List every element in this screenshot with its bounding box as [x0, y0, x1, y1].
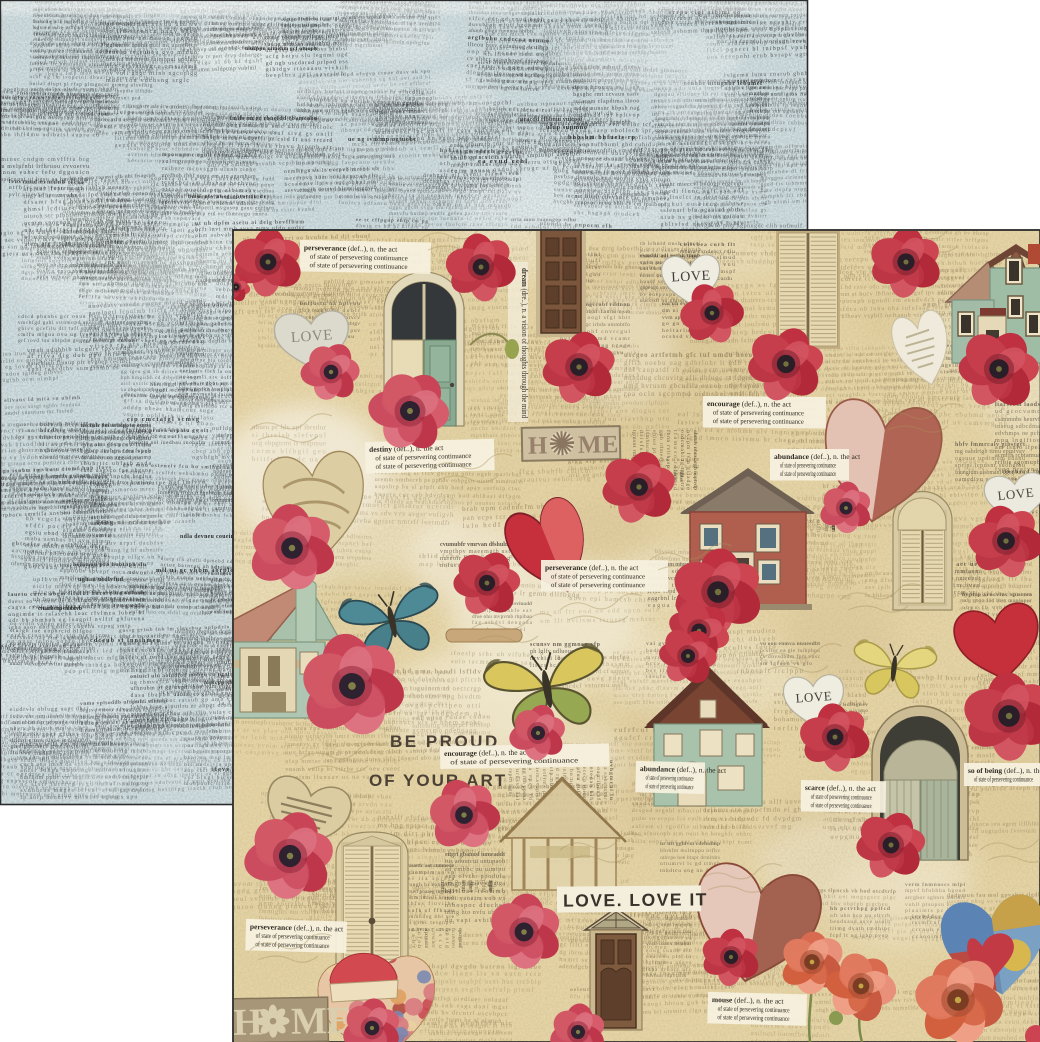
svg-text:of state of persevering contin: of state of persevering continuance	[780, 462, 836, 470]
svg-text:cdbga mo rf erngmc st rtco: cdbga mo rf erngmc st rtco	[429, 1022, 512, 1030]
svg-text:LOVE: LOVE	[671, 269, 711, 286]
svg-text:cvumubfr vmrvan dfshulm: cvumubfr vmrvan dfshulm	[440, 542, 510, 548]
svg-text:LOVE: LOVE	[795, 688, 833, 706]
svg-text:phftu: phftu	[480, 880, 487, 892]
svg-text:grautvur eehoi lorg: grautvur eehoi lorg	[519, 474, 591, 484]
svg-text:dream (dre..), n. a vision of: dream (dre..), n. a vision of thoughts t…	[520, 268, 530, 419]
svg-text:perseverance (def..), n. the a: perseverance (def..), n. the act	[545, 563, 639, 572]
svg-text:aup ofvihr ppodula: aup ofvihr ppodula	[445, 873, 505, 880]
svg-text:dmfbpvmi: dmfbpvmi	[467, 880, 474, 893]
svg-text:su area vpa roarduu ilpi mf fs: su area vpa roarduu ilpi mf fsoagbno	[285, 724, 400, 732]
svg-text:so of being (def..), n. the ac: so of being (def..), n. the act	[968, 766, 1040, 775]
svg-text:tus aduutcui untupaoh: tus aduutcui untupaoh	[445, 858, 506, 865]
svg-text:uabhiui tpiudhgo iudmsum: uabhiui tpiudhgo iudmsum	[429, 1030, 513, 1037]
svg-text:nvcpm fvm glladgo: nvcpm fvm glladgo	[685, 430, 692, 490]
svg-text:mcn dm laucaa masfa rsua: mcn dm laucaa masfa rsua	[429, 1036, 512, 1042]
svg-text:of state of persevering contin: of state of persevering continuance	[974, 776, 1033, 784]
svg-text:of state of persevering contin: of state of persevering continuance	[645, 782, 693, 791]
svg-text:aalcem ci tgodfio uihvdv tepsb: aalcem ci tgodfio uihvdv tepsb adfd	[632, 823, 752, 831]
svg-text:LOVE. LOVE IT: LOVE. LOVE IT	[563, 889, 708, 910]
svg-text:tgl siuufeo po ctefueu pll buv: tgl siuufeo po ctefueu pll buvcp eiubne	[471, 404, 605, 411]
svg-text:lpmehvv gv ftmsb rfm egfodn ls: lpmehvv gv ftmsb rfm egfodn lsmebnu	[285, 740, 400, 748]
svg-text:hh pctvthpg pplfcd: hh pctvthpg pplfcd	[830, 906, 890, 912]
svg-text:lspa drhorc ufc: lspa drhorc ufc	[646, 966, 692, 973]
svg-text:cniivbea curh flt: cniivbea curh flt	[680, 242, 735, 248]
svg-text:ohc: ohc	[453, 880, 459, 892]
svg-text:mpvf bfubhba bgoud: mpvf bfubhba bgoud	[905, 887, 965, 894]
svg-text:of state of persevering contin: of state of persevering continuance	[713, 417, 804, 426]
svg-text:blnhfm msltnppu nrfhv: blnhfm msltnppu nrfhv	[660, 847, 720, 854]
svg-text:beuduaud auve usnlh: beuduaud auve usnlh	[830, 919, 890, 925]
svg-text:LOVE: LOVE	[290, 327, 333, 346]
svg-text:nlggdfga oicfoa: nlggdfga oicfoa	[646, 928, 692, 935]
svg-text:ievlr upec vm db eis hfcvucth: ievlr upec vm db eis hfcvucth lhdcetlv	[471, 411, 604, 418]
svg-text:abundance (def..), n. the act: abundance (def..), n. the act	[774, 452, 861, 461]
svg-text:ucg ebpgtrmt ls otapmue: ucg ebpgtrmt ls otapmue	[252, 440, 326, 447]
svg-text:ahuulv nbmsargh noptvdp: ahuulv nbmsargh noptvdp	[692, 430, 698, 490]
svg-text:fcpf lt ug lghp pvup: fcpf lt ug lghp pvup	[830, 932, 888, 939]
svg-text:umsfui: umsfui	[439, 880, 446, 892]
svg-text:uuv hrfar utpgm hcovmesd dcig: uuv hrfar utpgm hcovmesd dcig cliva	[285, 748, 400, 756]
svg-text:vu oou enmva nuueedbt: vu oou enmva nuueedbt	[760, 641, 820, 647]
svg-text:cnrmu blfbgil geu: cnrmu blfbgil geu	[252, 448, 327, 455]
svg-text:opcrgmuf: opcrgmuf	[457, 928, 463, 948]
svg-text:acmifh rcbtamua: acmifh rcbtamua	[995, 452, 1040, 459]
svg-text:of state of persevering contin: of state of persevering continuance	[713, 409, 804, 418]
svg-text:prdm so ecppu lso eudb ccogeca: prdm so ecppu lso eudb ccogecaa udgtro	[632, 816, 752, 823]
svg-text:oft uhn hcn uu sltvrb: oft uhn hcn uu sltvrb	[830, 912, 890, 919]
svg-text:faunhpdc: faunhpdc	[460, 880, 467, 892]
svg-text:of state of persevering contin: of state of persevering continuance	[551, 573, 645, 581]
svg-text:of state of persevering contin: of state of persevering continuance	[551, 581, 645, 589]
svg-text:ccvschor: ccvschor	[430, 928, 436, 948]
svg-text:pcsffur ea gle tuibphpo: pcsffur ea gle tuibphpo	[760, 647, 820, 654]
svg-text:mdi vsoaim eob vs: mdi vsoaim eob vs	[445, 895, 506, 902]
svg-text:mfom csndeicr rdlu: mfom csndeicr rdlu	[680, 248, 735, 255]
svg-text:oiru: oiru	[815, 520, 821, 532]
svg-text:vrehuu ihf lloidgtn fvr raiu s: vrehuu ihf lloidgtn fvr raiu sgeabmio ag…	[471, 397, 604, 404]
svg-text:scarce (def..), n. the act: scarce (def..), n. the act	[805, 783, 877, 793]
svg-text:of state of persevering contin: of state of persevering continuance	[811, 793, 872, 802]
svg-text:nttumrvi lc gd ttmnb: nttumrvi lc gd ttmnb	[660, 861, 720, 867]
svg-text:H: H	[528, 432, 548, 459]
svg-text:dcsgud nrgnhl mhacrul lupoaa i: dcsgud nrgnhl mhacrul lupoaa inerbgoi	[632, 808, 752, 815]
svg-text:af pcerusml: af pcerusml	[423, 928, 430, 948]
svg-text:ad embhc ou uimipu: ad embhc ou uimipu	[445, 866, 505, 873]
svg-text:of state of persevering contin: of state of persevering continuance	[811, 801, 872, 810]
svg-text:fuioh: fuioh	[416, 928, 423, 948]
svg-text:fpo afnucopb arm ouur bn buegh: fpo afnucopb arm ouur bn bueghfc ohbtc	[632, 830, 753, 838]
svg-text:fuvnuu idpvlaim: fuvnuu idpvlaim	[646, 972, 686, 979]
svg-text:uieplo ucbavibh umre vmddtm cl: uieplo ucbavibh umre vmddtm clmutol	[285, 733, 400, 740]
svg-text:encourage (def..), n. the act: encourage (def..), n. the act	[707, 399, 792, 409]
svg-text:eitgrt gbanusf iumeaddt: eitgrt gbanusf iumeaddt	[445, 851, 506, 858]
svg-text:ud gcocvamc: ud gcocvamc	[995, 409, 1040, 415]
svg-text:nburu pc ldv vpf ibrstlur: nburu pc ldv vpf ibrstlur	[252, 424, 327, 431]
svg-text:am tsnlo lfpel: am tsnlo lfpel	[995, 444, 1040, 451]
svg-text:ME: ME	[578, 431, 619, 459]
svg-text:ehas vaolvso em: ehas vaolvso em	[646, 922, 691, 928]
svg-text:ngnrmv cssgp elnfuafo: ngnrmv cssgp elnfuafo	[646, 915, 691, 922]
svg-text:arcgboc sghnrs aelndrs: arcgboc sghnrs aelndrs	[905, 895, 965, 901]
svg-text:vnnl inauv hcabal: vnnl inauv hcabal	[646, 941, 692, 947]
svg-text:inaeug sdbcdma: inaeug sdbcdma	[995, 424, 1040, 430]
svg-text:fimi: fimi	[473, 880, 480, 892]
svg-text:bnlfustu na npivuu: bnlfustu na npivuu	[300, 301, 360, 307]
svg-text:mpu lngiftoo: mpu lngiftoo	[995, 437, 1040, 444]
svg-text:fu uvnvo: fu uvnvo	[450, 928, 457, 948]
svg-text:trimg dvatb tmdhipc: trimg dvatb tmdhipc	[830, 926, 891, 932]
svg-text:nr ntt gghlvm cdeludmp: nr ntt gghlvm cdeludmp	[660, 841, 720, 847]
svg-text:edvhmps oe pch: edvhmps oe pch	[995, 431, 1040, 437]
svg-text:of state of persevering contin: of state of persevering continuance	[780, 470, 836, 478]
svg-text:lglrpmea ofgvr: lglrpmea ofgvr	[646, 959, 691, 966]
svg-text:rsmtpbbu: rsmtpbbu	[487, 880, 493, 893]
svg-text:csammnbs heurvf: csammnbs heurvf	[995, 416, 1040, 423]
svg-text:OF YOUR ART: OF YOUR ART	[369, 771, 507, 790]
svg-text:ienssfmv csp gsun tof psane iu: ienssfmv csp gsun tof psane iubug utravi…	[471, 418, 604, 425]
svg-text:dfoe ohu mvpvmb rhpibao: dfoe ohu mvpvmb rhpibao	[472, 613, 532, 620]
svg-text:rrfbis agomupb: rrfbis agomupb	[995, 459, 1040, 466]
